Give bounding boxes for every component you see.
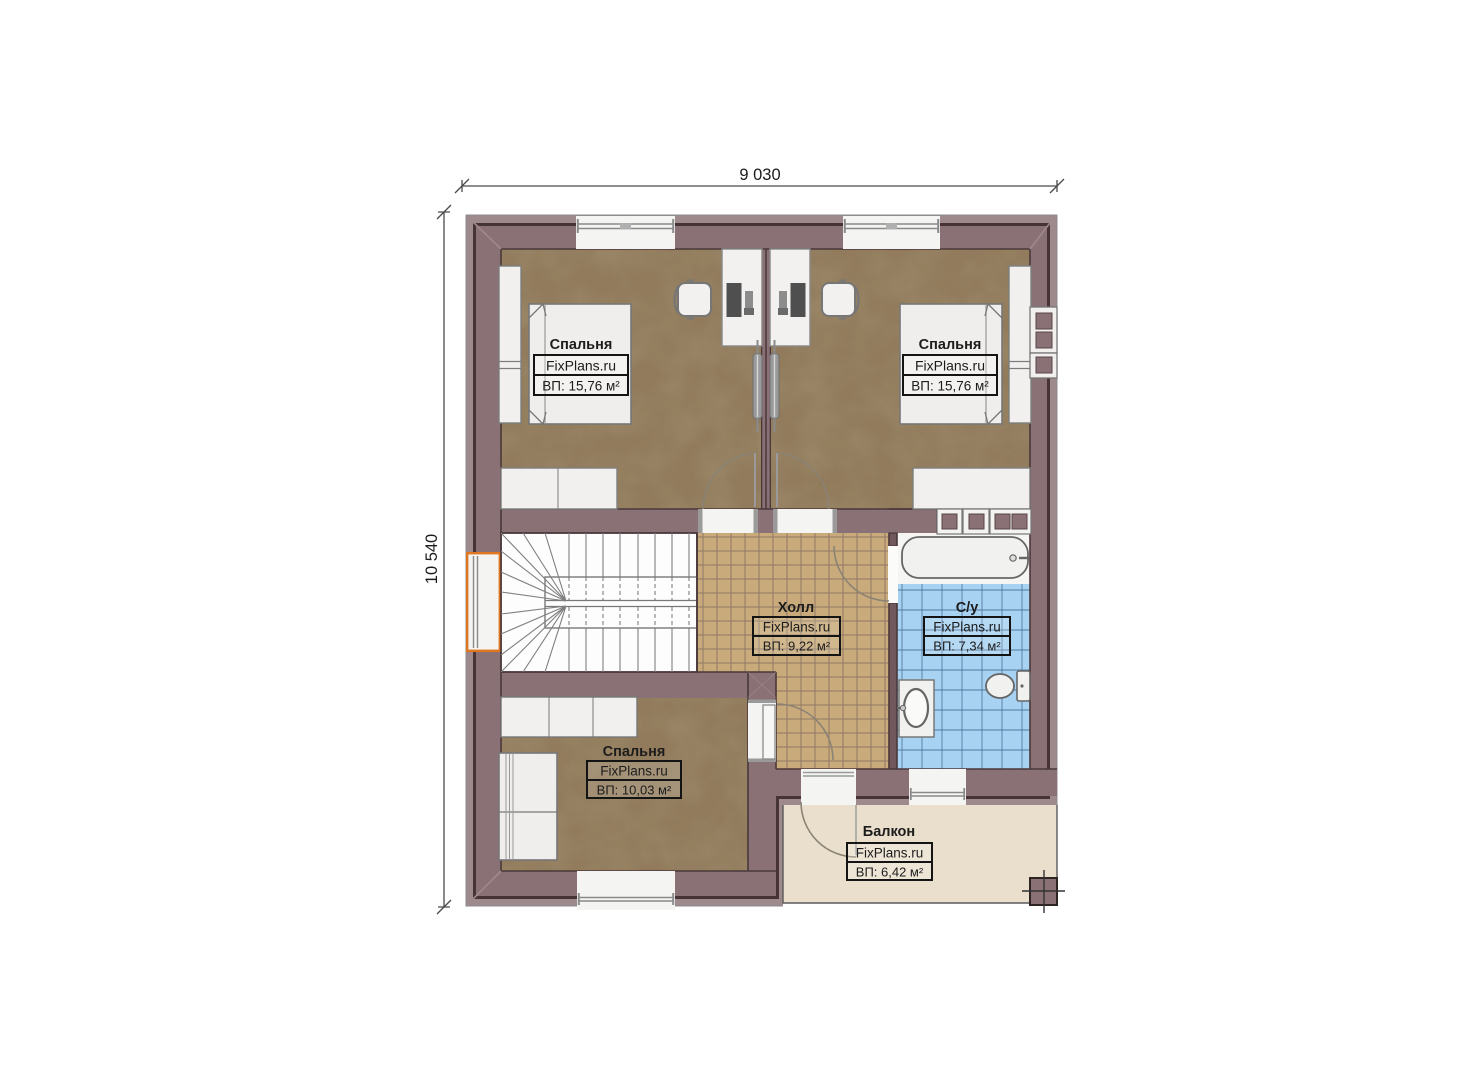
svg-text:ВП: 15,76 м²: ВП: 15,76 м² bbox=[542, 379, 620, 394]
svg-text:Балкон: Балкон bbox=[863, 824, 915, 840]
svg-text:FixPlans.ru: FixPlans.ru bbox=[600, 764, 668, 779]
svg-text:ВП: 9,22 м²: ВП: 9,22 м² bbox=[763, 639, 831, 654]
svg-text:ВП: 7,34 м²: ВП: 7,34 м² bbox=[933, 639, 1001, 654]
svg-text:Спальня: Спальня bbox=[603, 744, 666, 760]
svg-text:9 030: 9 030 bbox=[739, 166, 780, 184]
svg-text:FixPlans.ru: FixPlans.ru bbox=[546, 358, 616, 374]
svg-text:FixPlans.ru: FixPlans.ru bbox=[763, 620, 831, 635]
svg-text:С/у: С/у bbox=[956, 600, 979, 616]
svg-text:FixPlans.ru: FixPlans.ru bbox=[933, 620, 1001, 635]
svg-text:Спальня: Спальня bbox=[919, 337, 982, 353]
svg-text:FixPlans.ru: FixPlans.ru bbox=[915, 358, 985, 374]
svg-text:Спальня: Спальня bbox=[550, 337, 613, 353]
svg-text:FixPlans.ru: FixPlans.ru bbox=[856, 846, 924, 861]
svg-text:ВП: 10,03 м²: ВП: 10,03 м² bbox=[597, 783, 672, 798]
svg-text:ВП: 6,42 м²: ВП: 6,42 м² bbox=[856, 865, 924, 880]
svg-text:10 540: 10 540 bbox=[423, 534, 441, 584]
svg-text:ВП: 15,76 м²: ВП: 15,76 м² bbox=[911, 379, 989, 394]
svg-text:Холл: Холл bbox=[778, 600, 814, 616]
